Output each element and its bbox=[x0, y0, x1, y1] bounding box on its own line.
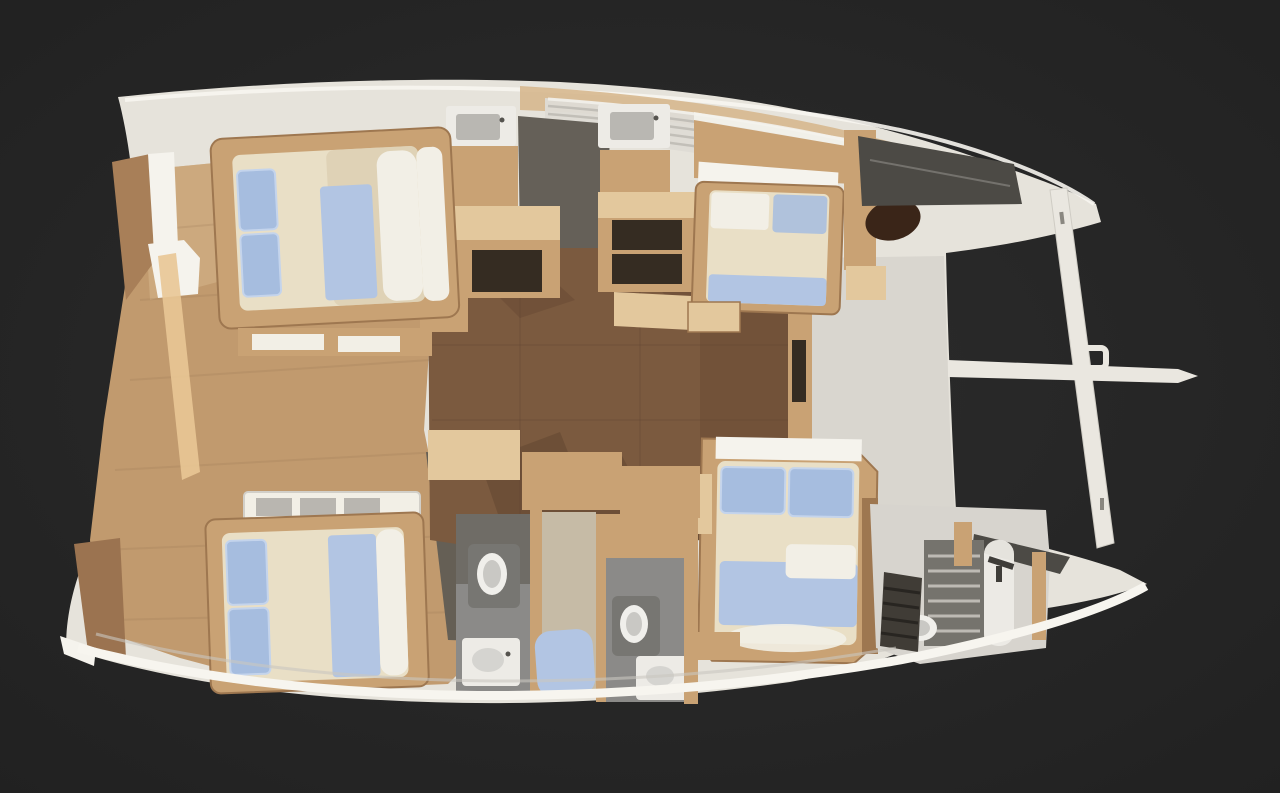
cabinet bbox=[522, 452, 622, 510]
shower-towel bbox=[534, 628, 596, 698]
wall-strip bbox=[954, 522, 972, 566]
footboard bbox=[376, 529, 409, 676]
starboard-aft-cabin bbox=[205, 512, 429, 694]
bench-drawer bbox=[252, 334, 324, 350]
corridor-doorway bbox=[792, 340, 806, 402]
port-aft-cabin-bench bbox=[238, 328, 432, 356]
deck-hardware bbox=[996, 566, 1002, 582]
cabinet bbox=[606, 514, 684, 560]
nightstand bbox=[688, 302, 740, 332]
pillow bbox=[240, 233, 281, 297]
blanket bbox=[328, 534, 381, 678]
toilet-bowl bbox=[483, 560, 501, 588]
blanket bbox=[320, 184, 378, 301]
starboard-forward-cabin bbox=[698, 437, 878, 664]
beam-fitting bbox=[1100, 498, 1104, 510]
sink-basin-aft bbox=[456, 114, 500, 140]
shelf-top bbox=[598, 192, 696, 218]
pillow bbox=[237, 169, 278, 231]
pillow bbox=[772, 194, 827, 234]
hull-stairs bbox=[880, 572, 922, 652]
starboard-bathrooms bbox=[428, 430, 700, 704]
faucet bbox=[500, 118, 505, 123]
shelf-slot bbox=[256, 498, 292, 516]
sink-basin bbox=[472, 648, 504, 672]
nav-desk bbox=[614, 292, 692, 330]
sink-basin-forward bbox=[610, 112, 654, 140]
curved-bulkhead bbox=[984, 540, 1014, 646]
shelf-slot bbox=[300, 498, 336, 516]
towel bbox=[785, 544, 856, 579]
cabinet-top bbox=[428, 430, 520, 480]
catamaran-floorplan-render bbox=[0, 0, 1280, 793]
starboard-forward-bathroom bbox=[862, 498, 1070, 664]
pillow-white bbox=[710, 192, 769, 230]
pillow bbox=[226, 540, 268, 605]
port-aft-cabin bbox=[210, 127, 460, 329]
pillow bbox=[721, 467, 786, 514]
cabinet bbox=[620, 466, 700, 518]
island-niche bbox=[472, 250, 542, 292]
bathroom-wall bbox=[596, 514, 606, 702]
faucet bbox=[506, 652, 511, 657]
faucet bbox=[654, 116, 659, 121]
bench-drawer bbox=[338, 336, 400, 352]
render-canvas bbox=[0, 0, 1280, 793]
toilet-bowl bbox=[626, 612, 642, 636]
duvet-roll bbox=[376, 150, 424, 302]
pillow bbox=[789, 468, 854, 517]
port-forward-cabin bbox=[692, 162, 845, 315]
companionway-shelf bbox=[846, 266, 886, 300]
bathroom-wall bbox=[684, 518, 698, 704]
cabin-roof-trim bbox=[716, 437, 862, 462]
